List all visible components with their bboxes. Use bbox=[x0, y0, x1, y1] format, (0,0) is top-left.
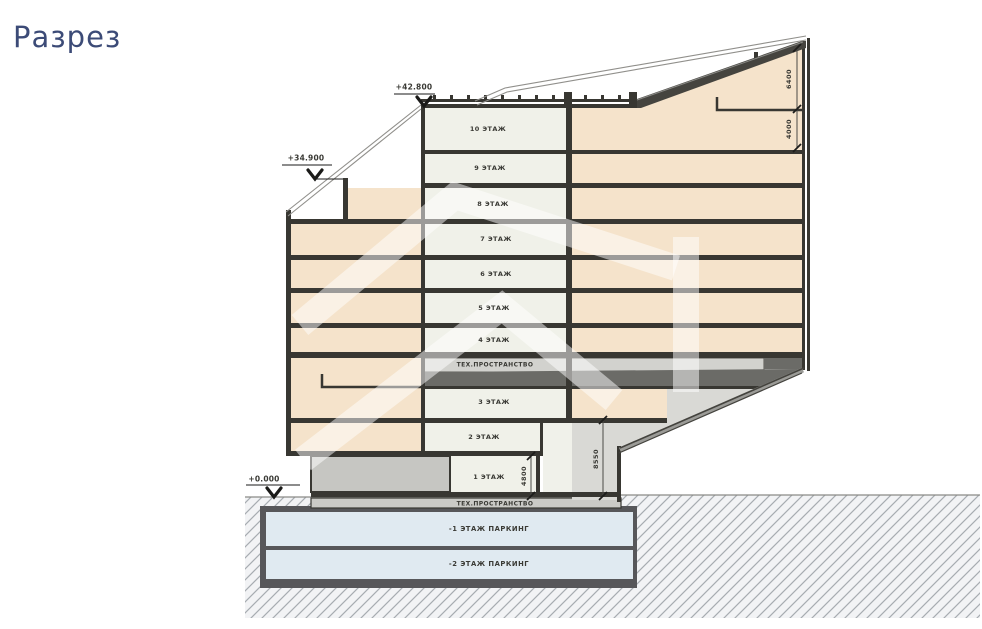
floor-label-3: 3 ЭТАЖ bbox=[478, 398, 509, 406]
elevation-label-mid: +34.900 bbox=[288, 154, 325, 163]
building-section-drawing bbox=[0, 0, 982, 629]
floor-label-5: 5 ЭТАЖ bbox=[478, 304, 509, 312]
floor-label-6: 6 ЭТАЖ bbox=[480, 270, 511, 278]
floor-label-9: 9 ЭТАЖ bbox=[474, 164, 505, 172]
parking-structure bbox=[260, 506, 637, 588]
section-drawing-page: Разрез bbox=[0, 0, 982, 629]
tech-space-label-mid: ТЕХ.ПРОСТРАНСТВО bbox=[457, 362, 534, 369]
floor-label-10: 10 ЭТАЖ bbox=[470, 125, 506, 133]
parking-label-minus2: -2 ЭТАЖ ПАРКИНГ bbox=[449, 560, 529, 568]
floor-label-7: 7 ЭТАЖ bbox=[480, 235, 511, 243]
tech-space-label-lower: ТЕХ.ПРОСТРАНСТВО bbox=[457, 501, 534, 508]
floor-label-4: 4 ЭТАЖ bbox=[478, 336, 509, 344]
elevation-label-top: +42.800 bbox=[396, 83, 433, 92]
dimension-label-4000: 4000 bbox=[785, 119, 793, 139]
elevation-label-ground: +0.000 bbox=[248, 475, 279, 484]
ground-floor-podium bbox=[311, 456, 450, 492]
dimension-label-8550: 8550 bbox=[592, 449, 600, 469]
right-facade-wall-outer bbox=[807, 38, 810, 371]
floor-label-8: 8 ЭТАЖ bbox=[477, 200, 508, 208]
dimension-label-6400: 6400 bbox=[785, 69, 793, 89]
floor-label-2: 2 ЭТАЖ bbox=[468, 433, 499, 441]
parking-label-minus1: -1 ЭТАЖ ПАРКИНГ bbox=[449, 525, 529, 533]
dimension-label-4800: 4800 bbox=[520, 466, 528, 486]
floor-label-1: 1 ЭТАЖ bbox=[473, 473, 504, 481]
right-facade-wall-inner bbox=[802, 45, 805, 370]
